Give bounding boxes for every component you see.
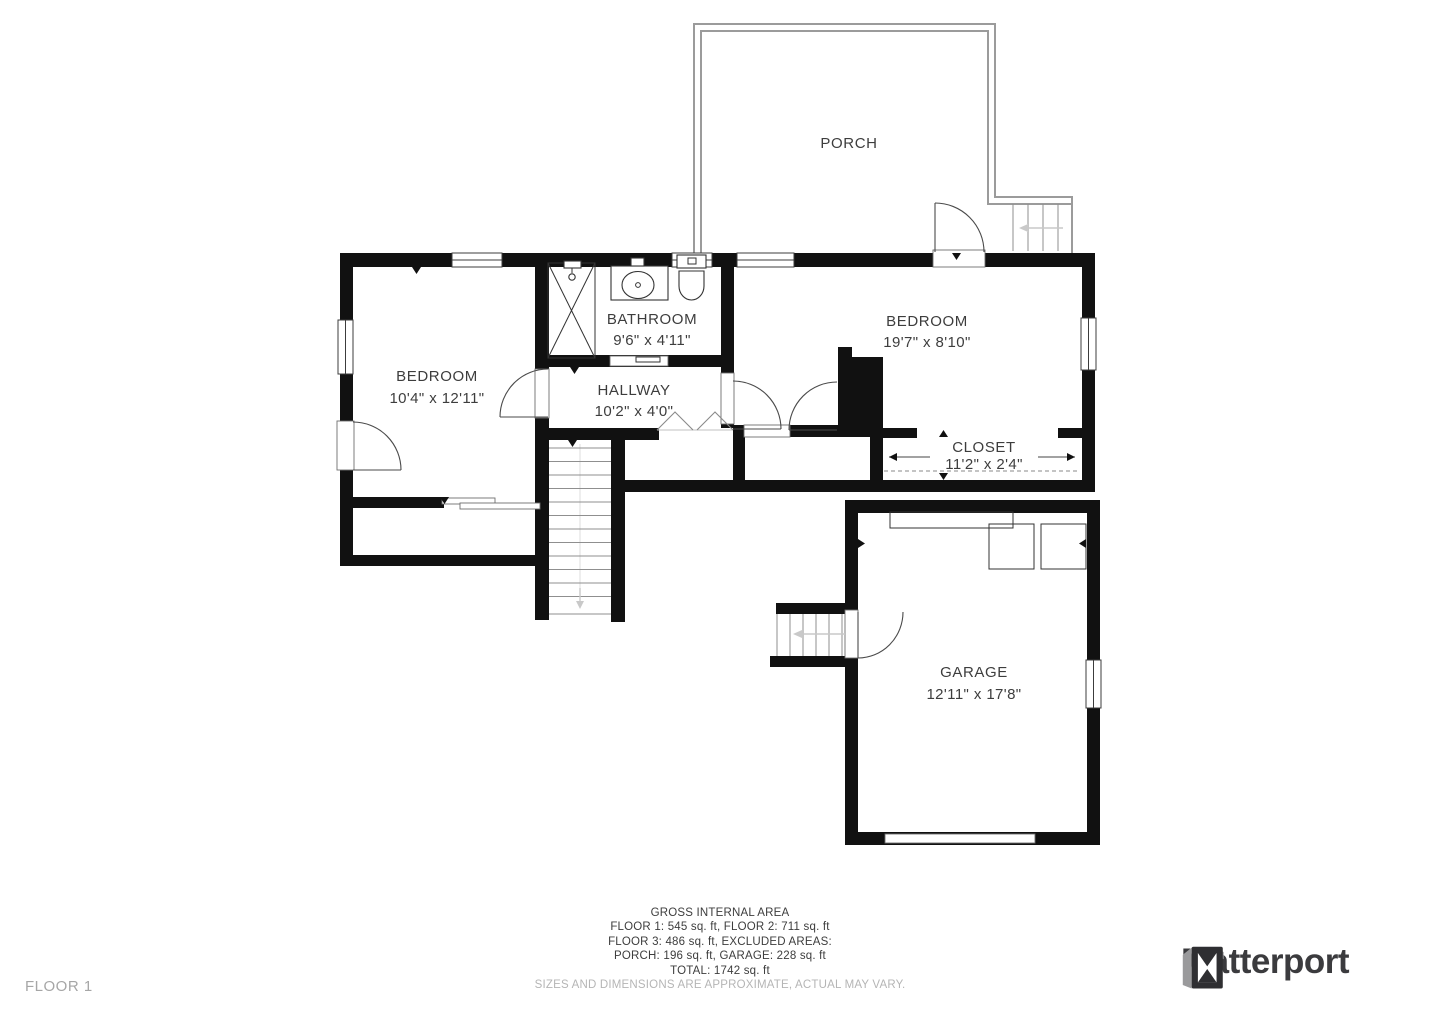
porch-door [935,203,984,252]
porch-stairs [1013,204,1063,251]
room-dims-bedroom-left: 10'4" x 12'11" [389,390,484,407]
garage-furniture [890,512,1086,569]
room-label-hallway: HALLWAY [597,382,670,399]
room-label-bathroom: BATHROOM [607,311,697,328]
area-summary-line: FLOOR 3: 486 sq. ft, EXCLUDED AREAS: [420,935,1020,949]
garage-entry-door [858,612,903,658]
sliding-door [442,498,540,509]
room-label-bedroom-left: BEDROOM [396,368,478,385]
garage-stairs [777,614,845,656]
toilet [677,255,706,300]
walls-main [340,253,1095,622]
shower [548,261,595,358]
room-labels: PORCH BATHROOM 9'6" x 4'11" BEDROOM 19'7… [389,135,1022,703]
area-summary-title: GROSS INTERNAL AREA [420,906,1020,920]
matterport-logo: Matterport [1181,942,1349,982]
window [1081,318,1096,370]
area-summary-line: PORCH: 196 sq. ft, GARAGE: 228 sq. ft [420,949,1020,963]
room-dims-bathroom: 9'6" x 4'11" [613,332,691,349]
floorplan-drawing: PORCH BATHROOM 9'6" x 4'11" BEDROOM 19'7… [0,0,1440,1018]
room-dims-garage: 12'11" x 17'8" [926,686,1021,703]
porch-outline [694,24,1072,253]
hallway-bedroom-door [733,381,781,429]
bedroom-left-entry-door [353,422,401,470]
room-dims-closet: 11'2" x 2'4" [945,456,1023,473]
window [1086,660,1101,708]
room-label-closet: CLOSET [952,439,1016,456]
area-summary: GROSS INTERNAL AREA FLOOR 1: 545 sq. ft,… [420,906,1020,992]
main-staircase [549,444,611,614]
window [737,253,794,267]
window [338,320,353,374]
floorplan-page: PORCH BATHROOM 9'6" x 4'11" BEDROOM 19'7… [0,0,1440,1018]
window [452,253,502,267]
room-dims-hallway: 10'2" x 4'0" [595,403,674,420]
room-label-garage: GARAGE [940,664,1008,681]
room-label-bedroom-right: BEDROOM [886,313,968,330]
room-label-porch: PORCH [820,135,877,152]
area-summary-line: TOTAL: 1742 sq. ft [420,964,1020,978]
area-summary-line: FLOOR 1: 545 sq. ft, FLOOR 2: 711 sq. ft [420,920,1020,934]
area-summary-disclaimer: SIZES AND DIMENSIONS ARE APPROXIMATE, AC… [420,978,1020,992]
floor-label: FLOOR 1 [25,978,93,995]
walls-garage [770,500,1100,845]
room-dims-bedroom-right: 19'7" x 8'10" [883,334,970,351]
matterport-cube-icon [1181,942,1229,996]
hallway-second-door [789,382,837,430]
